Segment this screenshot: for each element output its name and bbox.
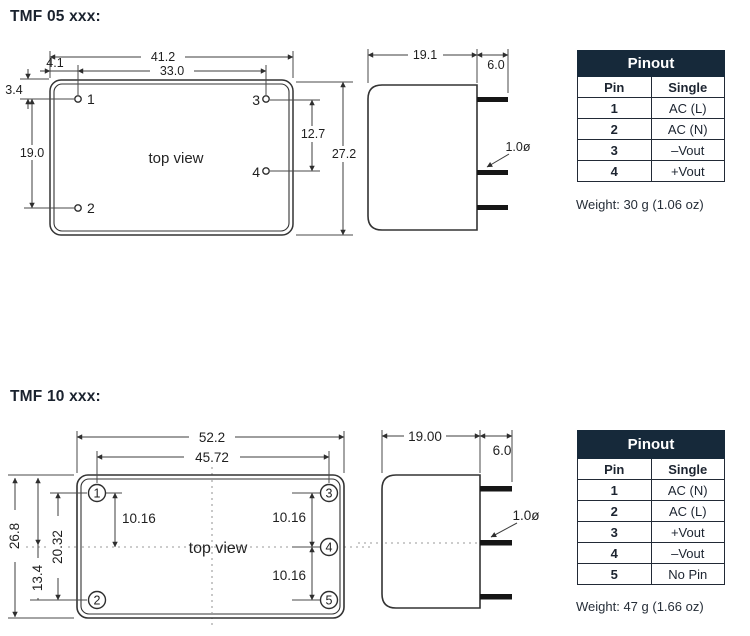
tmf10-top-view-label: top view bbox=[189, 540, 248, 557]
tmf05-dim-pin-span-x: 33.0 bbox=[160, 64, 184, 78]
tmf10-side-body bbox=[382, 475, 480, 608]
tmf10-pinout-table: Pinout Pin Single 1 AC (N) 2 AC (L) 3 +V… bbox=[577, 430, 725, 585]
tmf05-row3-single: –Vout bbox=[651, 140, 725, 161]
tmf10-section-title: TMF 10 xxx: bbox=[10, 388, 101, 406]
tmf05-pinout-title: Pinout bbox=[578, 51, 725, 77]
tmf10-weight: Weight: 47 g (1.66 oz) bbox=[576, 599, 704, 614]
tmf10-row4-pin: 4 bbox=[578, 543, 652, 564]
tmf10-dim-body-depth: 19.00 bbox=[408, 429, 442, 444]
tmf10-dim-pin-diameter: 1.0ø bbox=[512, 508, 539, 523]
tmf05-pin1-pad bbox=[75, 96, 81, 102]
tmf05-row4-pin: 4 bbox=[578, 161, 652, 182]
tmf10-row5-single: No Pin bbox=[651, 564, 725, 585]
tmf10-dim-pitch-left: 10.16 bbox=[122, 511, 156, 526]
tmf10-row3-pin: 3 bbox=[578, 522, 652, 543]
tmf05-side-pins bbox=[477, 97, 508, 210]
tmf10-pin2-label: 2 bbox=[94, 594, 101, 608]
tmf05-section-title: TMF 05 xxx: bbox=[10, 8, 101, 26]
tmf10-row2-single: AC (L) bbox=[651, 501, 725, 522]
tmf10-dim-body-height: 26.8 bbox=[7, 523, 22, 549]
tmf10-dim-pin-length: 6.0 bbox=[493, 443, 512, 458]
tmf05-side-body bbox=[368, 85, 477, 230]
tmf05-pin4-label: 4 bbox=[252, 164, 260, 180]
tmf10-pin1-label: 1 bbox=[94, 487, 101, 501]
tmf10-row3-single: +Vout bbox=[651, 522, 725, 543]
table-row: 4 –Vout bbox=[578, 543, 725, 564]
tmf10-row1-pin: 1 bbox=[578, 480, 652, 501]
tmf05-dim-body-width: 41.2 bbox=[151, 50, 175, 64]
tmf05-pinout-table: Pinout Pin Single 1 AC (L) 2 AC (N) 3 –V… bbox=[577, 50, 725, 182]
tmf10-row2-pin: 2 bbox=[578, 501, 652, 522]
table-row: 2 AC (N) bbox=[578, 119, 725, 140]
tmf10-side-view-drawing: 19.00 6.0 1.0ø bbox=[355, 420, 550, 636]
tmf05-pin1-label: 1 bbox=[87, 91, 95, 107]
tmf10-dim-pin-span-y: 20.32 bbox=[50, 530, 65, 564]
tmf05-col-single: Single bbox=[651, 77, 725, 98]
table-row: 3 +Vout bbox=[578, 522, 725, 543]
tmf05-top-view-drawing: 41.2 33.0 4.1 3.4 19.0 12.7 27.2 top vie… bbox=[0, 45, 362, 250]
tmf05-dim-pin-span-y-left: 19.0 bbox=[20, 146, 44, 160]
table-row: 5 No Pin bbox=[578, 564, 725, 585]
tmf05-row4-single: +Vout bbox=[651, 161, 725, 182]
table-row: 1 AC (N) bbox=[578, 480, 725, 501]
tmf10-pinout-title: Pinout bbox=[578, 431, 725, 459]
tmf10-row1-single: AC (N) bbox=[651, 480, 725, 501]
table-row: 2 AC (L) bbox=[578, 501, 725, 522]
tmf05-pin2-pad bbox=[75, 205, 81, 211]
tmf05-dim-body-depth: 19.1 bbox=[413, 48, 437, 62]
tmf05-pin3-label: 3 bbox=[252, 92, 260, 108]
tmf05-pin4-pad bbox=[263, 168, 269, 174]
tmf05-row2-pin: 2 bbox=[578, 119, 652, 140]
tmf10-dim-body-width: 52.2 bbox=[199, 430, 225, 445]
tmf10-row5-pin: 5 bbox=[578, 564, 652, 585]
table-row: 4 +Vout bbox=[578, 161, 725, 182]
tmf05-pin2-label: 2 bbox=[87, 200, 95, 216]
tmf05-dim-body-height: 27.2 bbox=[332, 147, 356, 161]
tmf10-col-pin: Pin bbox=[578, 459, 652, 480]
tmf10-pin3-label: 3 bbox=[326, 487, 333, 501]
tmf10-dim-pitch-bottom: 10.16 bbox=[272, 568, 306, 583]
tmf10-dim-pitch-top: 10.16 bbox=[272, 510, 306, 525]
tmf05-dim-pin-offset-y: 3.4 bbox=[5, 83, 22, 97]
tmf05-row1-single: AC (L) bbox=[651, 98, 725, 119]
tmf05-dim-pin-offset-x: 4.1 bbox=[46, 56, 63, 70]
tmf05-weight: Weight: 30 g (1.06 oz) bbox=[576, 197, 704, 212]
tmf05-dim-pin-span-y-right: 12.7 bbox=[301, 127, 325, 141]
tmf10-col-single: Single bbox=[651, 459, 725, 480]
tmf10-pin4-label: 4 bbox=[326, 541, 333, 555]
tmf10-top-view-drawing: 52.2 45.72 26.8 20.32 13.4 10.16 10.16 1… bbox=[0, 420, 378, 636]
tmf05-pin3-pad bbox=[263, 96, 269, 102]
tmf05-row1-pin: 1 bbox=[578, 98, 652, 119]
tmf05-dim-pin-diameter: 1.0ø bbox=[505, 140, 530, 154]
tmf10-dim-pin-span-x: 45.72 bbox=[195, 450, 229, 465]
tmf05-side-view-drawing: 19.1 6.0 1.0ø bbox=[355, 45, 547, 245]
tmf05-dim-pin-length: 6.0 bbox=[487, 58, 504, 72]
table-row: 1 AC (L) bbox=[578, 98, 725, 119]
tmf10-row4-single: –Vout bbox=[651, 543, 725, 564]
datasheet-page: TMF 05 xxx: bbox=[0, 0, 750, 636]
tmf05-row2-single: AC (N) bbox=[651, 119, 725, 140]
tmf05-col-pin: Pin bbox=[578, 77, 652, 98]
table-row: 3 –Vout bbox=[578, 140, 725, 161]
tmf05-top-view-label: top view bbox=[148, 150, 203, 167]
tmf05-row3-pin: 3 bbox=[578, 140, 652, 161]
tmf10-side-pins bbox=[480, 486, 512, 600]
tmf10-pin5-label: 5 bbox=[326, 594, 333, 608]
tmf10-dim-half-height: 13.4 bbox=[30, 564, 45, 591]
